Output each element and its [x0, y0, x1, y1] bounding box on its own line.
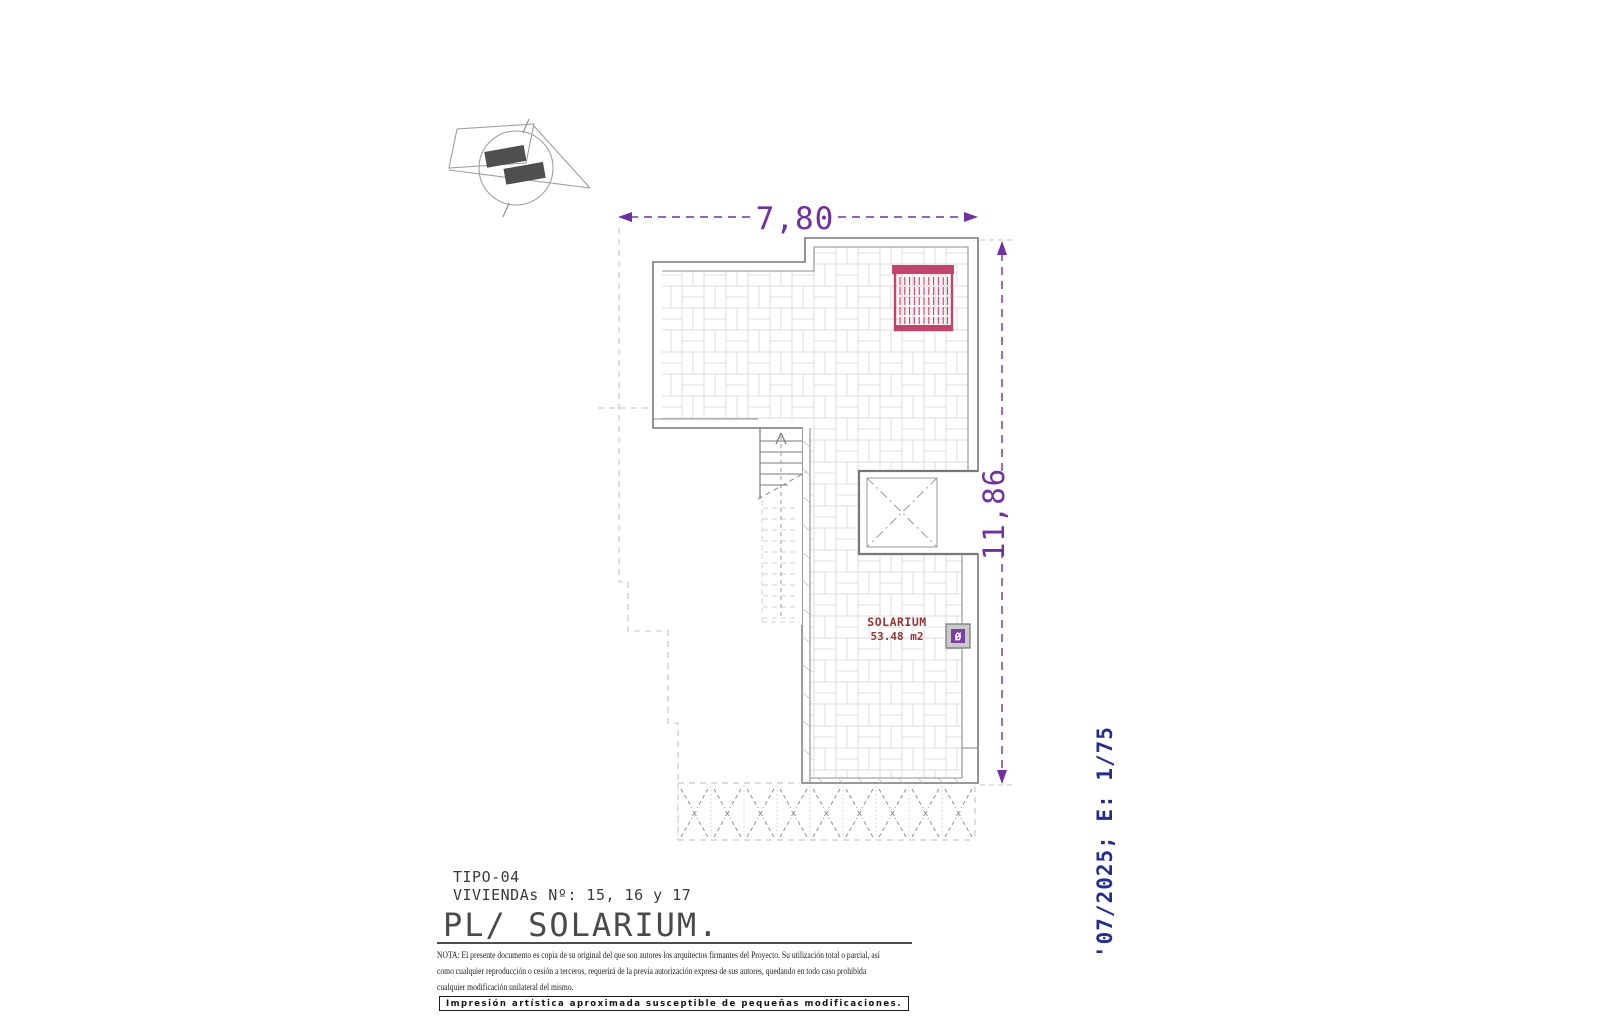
louver-strip: x x x x x x x x x: [678, 783, 975, 840]
stairs-symbol: [758, 428, 806, 625]
svg-text:x: x: [923, 809, 929, 819]
title-block: TIPO-04 VIVIENDAs Nº: 15, 16 y 17 PL/ SO…: [443, 868, 719, 944]
note-line: cualquier modificación unilateral del mi…: [437, 980, 917, 996]
print-word: Impresión: [446, 999, 507, 1009]
dimension-top: 7,80: [618, 201, 978, 237]
print-disclaimer-bar: Impresión artística aproximada susceptib…: [439, 996, 909, 1011]
print-word: artística: [512, 999, 565, 1009]
svg-text:53.48 m2: 53.48 m2: [871, 630, 924, 643]
note-line: NOTA: El presente documento es copia de …: [437, 948, 917, 964]
print-word: modificaciones.: [804, 999, 901, 1009]
dwellings-label: VIVIENDAs Nº: 15, 16 y 17: [453, 886, 719, 904]
plan-title: PL/ SOLARIUM.: [443, 906, 719, 944]
svg-text:Ø: Ø: [954, 631, 962, 644]
copyright-note: NOTA: El presente documento es copia de …: [437, 948, 1037, 996]
print-word: susceptible: [646, 999, 717, 1009]
svg-text:SOLARIUM: SOLARIUM: [867, 615, 926, 629]
title-divider: [437, 942, 912, 944]
pergola-symbol: [892, 265, 954, 330]
svg-text:7,80: 7,80: [756, 201, 835, 237]
dimension-right: 11,86: [977, 240, 1012, 785]
svg-text:11,86: 11,86: [977, 468, 1011, 560]
svg-text:x: x: [791, 809, 797, 819]
floor-plan-drawing: Ø SOLARIUM 53.48 m2 x x x x: [0, 0, 1600, 1024]
shaft-void: [859, 471, 978, 554]
svg-text:x: x: [890, 809, 896, 819]
svg-text:x: x: [857, 809, 863, 819]
note-line: como cualquier reproducción o cesión a t…: [437, 964, 917, 980]
north-arrow-icon: [449, 119, 590, 217]
svg-text:x: x: [758, 809, 764, 819]
svg-text:x: x: [824, 809, 830, 819]
print-word: de: [722, 999, 737, 1009]
type-label: TIPO-04: [453, 868, 719, 886]
drawing-sheet: Ø SOLARIUM 53.48 m2 x x x x: [0, 0, 1600, 1024]
print-word: pequeñas: [741, 999, 800, 1009]
svg-text:x: x: [956, 809, 962, 819]
print-word: aproximada: [570, 999, 642, 1009]
drain-icon: Ø: [946, 624, 970, 648]
svg-text:x: x: [692, 809, 698, 819]
svg-text:x: x: [725, 809, 731, 819]
revision-scale-text: '07/2025; E: 1/75: [1093, 758, 1117, 958]
